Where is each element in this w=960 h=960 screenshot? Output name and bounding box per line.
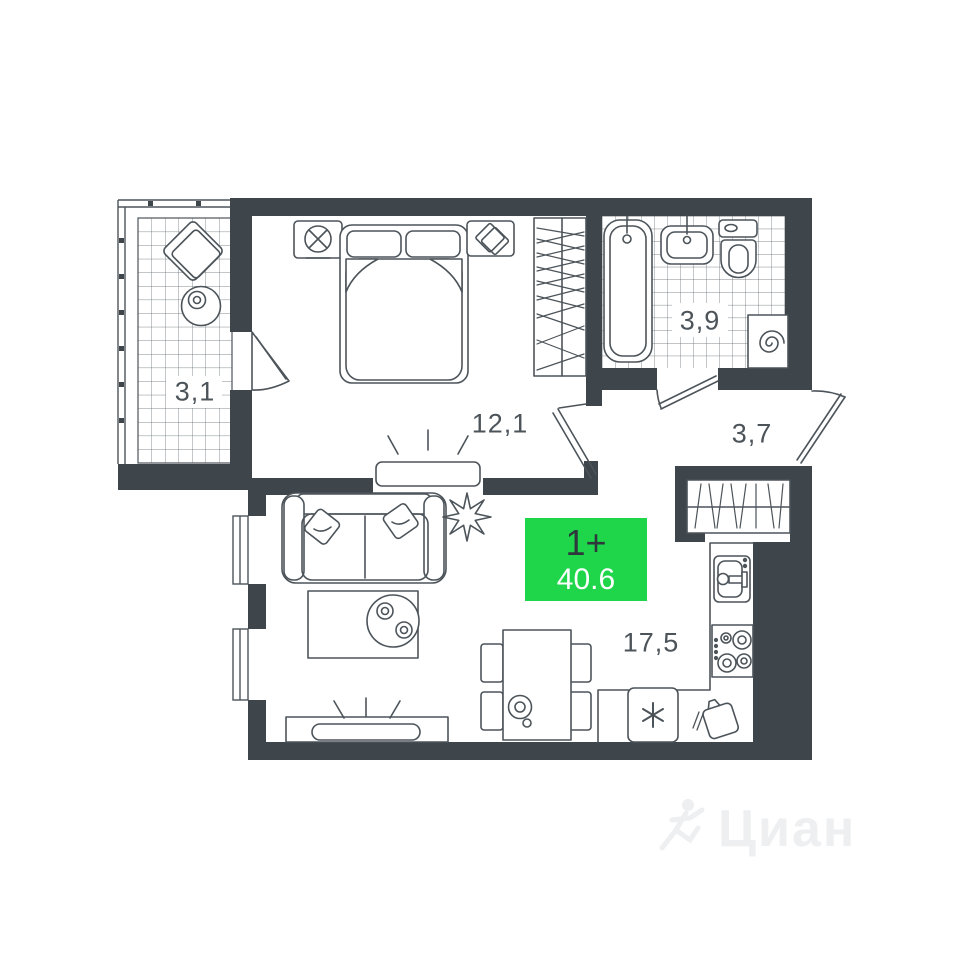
living-tv — [286, 698, 448, 742]
dining-set — [481, 630, 591, 740]
bathtub — [604, 216, 652, 362]
area-badge: 1+ 40.6 — [525, 518, 647, 601]
plant — [443, 493, 491, 541]
rug-and-coffee-table — [308, 591, 419, 658]
brand-logo-person-icon — [652, 796, 710, 862]
bedroom-wardrobe — [534, 218, 586, 376]
room-label-bathroom: 3,9 — [680, 306, 721, 337]
badge-rooms-count: 1+ — [565, 524, 606, 562]
toilet — [719, 220, 757, 278]
bedroom-tv — [376, 430, 480, 486]
living-windows — [233, 516, 248, 700]
bed — [340, 225, 468, 383]
bathroom-door — [657, 376, 718, 409]
floor-plan-page: 3,1 12,1 3,9 3,7 17,5 1+ 40.6 Циан — [0, 0, 960, 960]
room-label-hallway: 3,7 — [732, 419, 773, 450]
stove — [712, 625, 753, 677]
balcony-table — [182, 287, 221, 326]
fridge — [628, 688, 678, 742]
washing-machine — [748, 315, 788, 368]
brand-watermark: Циан — [652, 796, 856, 862]
room-label-balcony: 3,1 — [175, 377, 216, 408]
badge-total-area: 40.6 — [557, 564, 615, 596]
kitchen-sink — [714, 556, 750, 602]
sofa — [282, 493, 446, 583]
entrance-door — [797, 391, 845, 463]
nightstand-left — [294, 221, 342, 258]
room-label-bedroom: 12,1 — [472, 409, 529, 440]
nightstand-right — [467, 221, 514, 256]
cutting-board — [693, 695, 740, 739]
balcony-door — [252, 332, 289, 390]
brand-watermark-text: Циан — [718, 799, 856, 859]
room-label-living-kitchen: 17,5 — [623, 628, 680, 659]
hallway-wardrobe — [687, 480, 790, 533]
